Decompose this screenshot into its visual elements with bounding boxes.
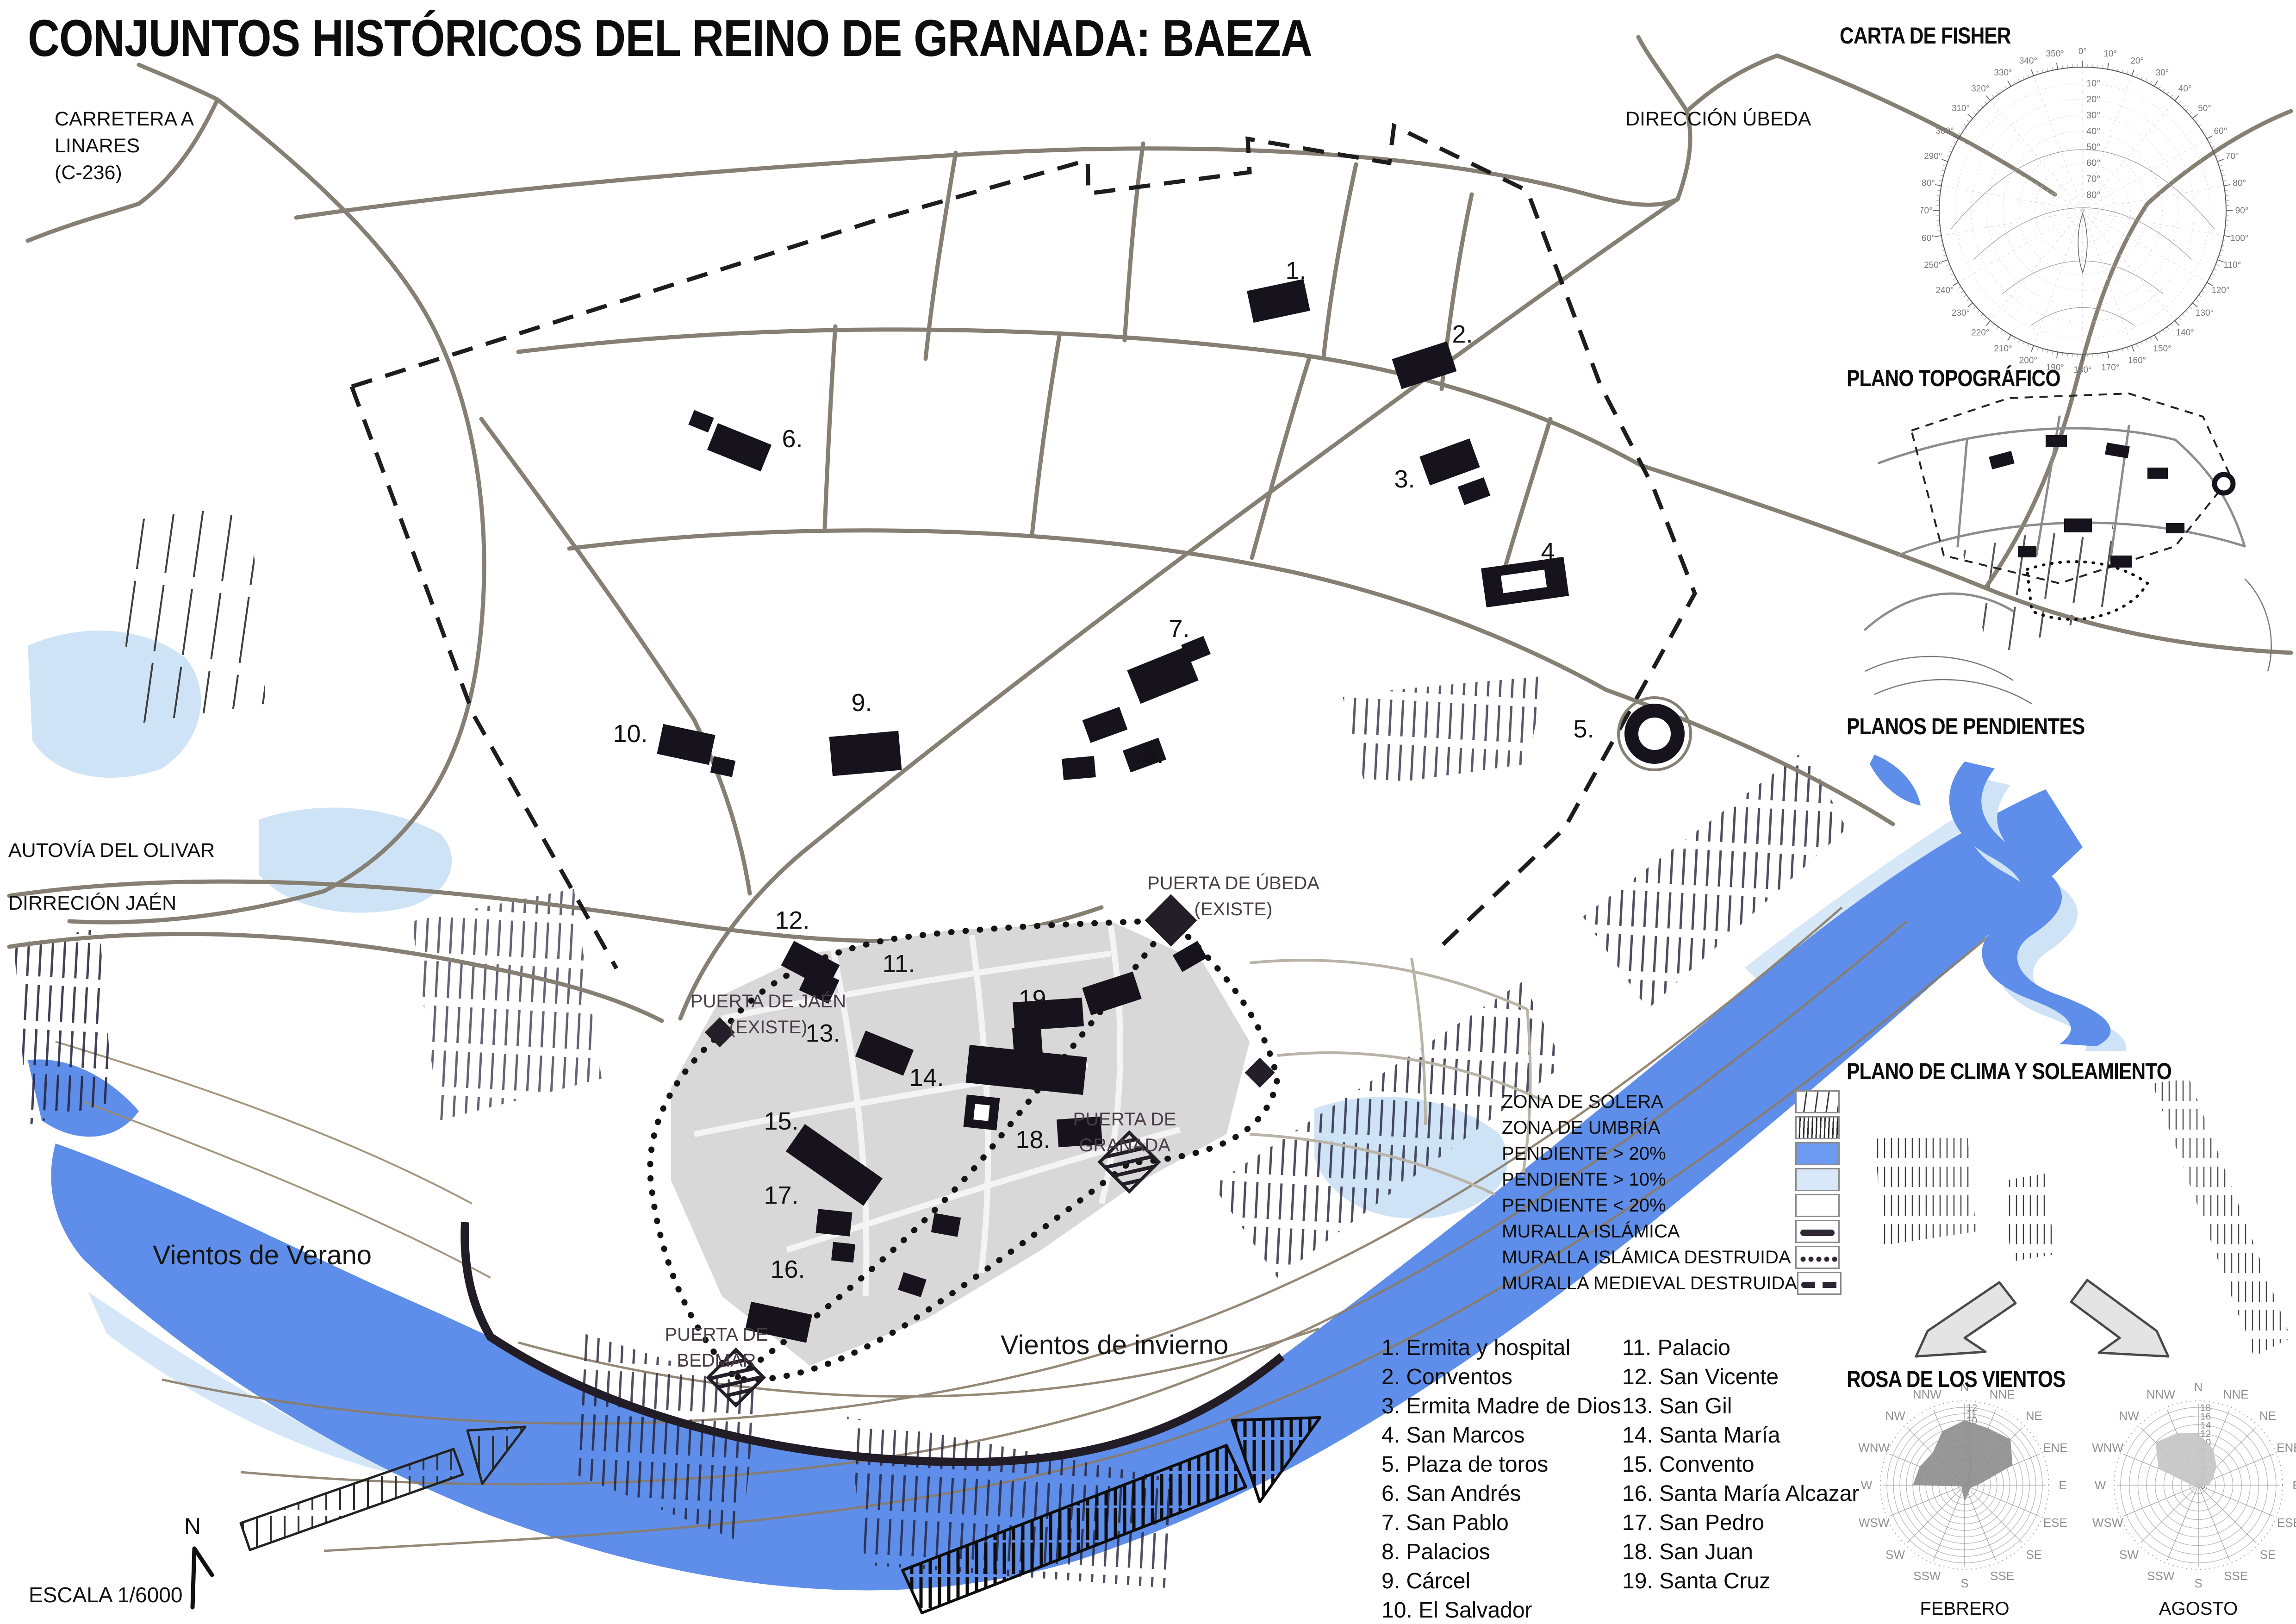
map-marker-15: 15. xyxy=(764,1107,798,1136)
topografico-panel-title: PLANO TOPOGRÁFICO xyxy=(1847,365,2060,392)
legend-label: MURALLA MEDIEVAL DESTRUIDA xyxy=(1502,1273,1797,1294)
azimuth-label: 150° xyxy=(2153,344,2171,354)
baeza-historic-map-sheet: 0°10°20°30°40°50°60°70°80°90°100°110°120… xyxy=(0,0,2296,1624)
azimuth-label: 70° xyxy=(2226,151,2239,161)
puerta-de-bedmar-line: PUERTA DE xyxy=(665,1322,768,1348)
legend-row: PENDIENTE > 20% xyxy=(1502,1141,1840,1167)
azimuth-label: 280° xyxy=(1921,178,1935,188)
azimuth-label: 320° xyxy=(1971,84,1989,94)
azimuth-label: 290° xyxy=(1924,151,1942,161)
azimuth-label: 0° xyxy=(2078,47,2087,56)
compass-label-NW: NW xyxy=(2119,1409,2139,1423)
altitude-label: 20° xyxy=(2086,94,2100,105)
compass-label-E: E xyxy=(2059,1478,2066,1492)
legend-swatch-dashed-line xyxy=(1797,1272,1842,1295)
altitude-label: 80° xyxy=(2086,190,2100,200)
puerta-de-bedmar-line: BEDMAR xyxy=(665,1348,768,1374)
map-marker-19: 19. xyxy=(1018,985,1053,1013)
azimuth-label: 80° xyxy=(2233,178,2246,188)
map-marker-5: 5. xyxy=(1573,715,1594,743)
index-entry: 7. San Pablo xyxy=(1381,1508,1621,1537)
compass-label-ENE: ENE xyxy=(2043,1441,2067,1455)
azimuth-label: 310° xyxy=(1952,104,1970,113)
azimuth-label: 160° xyxy=(2128,356,2146,365)
compass-label-SSE: SSE xyxy=(1990,1569,2014,1583)
map-marker-4: 4. xyxy=(1541,537,1562,566)
map-marker-14: 14. xyxy=(909,1063,944,1092)
azimuth-label: 250° xyxy=(1924,261,1942,270)
fisher-panel-title: CARTA DE FISHER xyxy=(1840,22,2011,49)
legend-label: PENDIENTE > 20% xyxy=(1502,1143,1795,1164)
compass-label-ESE: ESE xyxy=(2277,1516,2296,1530)
azimuth-label: 180° xyxy=(2073,365,2091,375)
index-entry: 9. Cárcel xyxy=(1381,1567,1621,1596)
compass-label-SE: SE xyxy=(2026,1548,2042,1562)
puerta-de-ubeda-label: PUERTA DE ÚBEDA(EXISTE) xyxy=(1147,870,1319,922)
radial-tick: 18 xyxy=(2200,1403,2211,1413)
index-entry: 19. Santa Cruz xyxy=(1622,1567,1859,1596)
topographic-mini-map xyxy=(1847,389,2291,713)
legend-row: ZONA DE SOLERA xyxy=(1502,1089,1840,1115)
puerta-de-granada-line: GRANADA xyxy=(1073,1132,1176,1158)
legend-swatch-solid-line xyxy=(1795,1220,1840,1243)
radial-tick: 12 xyxy=(1966,1403,1977,1413)
wind-roses-chart: NNNENEENEEESESESSESSSWSWWSWWWNWNWNNW0123… xyxy=(1833,1380,2296,1624)
legend-row: PENDIENTE > 10% xyxy=(1502,1167,1840,1193)
winter-winds-label: Vientos de invierno xyxy=(1001,1330,1228,1361)
map-marker-16: 16. xyxy=(770,1255,805,1284)
index-entry: 18. San Juan xyxy=(1622,1537,1859,1567)
azimuth-label: 210° xyxy=(1994,344,2012,354)
compass-label-W: W xyxy=(2095,1478,2106,1492)
altitude-label: 70° xyxy=(2086,174,2100,184)
puerta-de-ubeda-line: PUERTA DE ÚBEDA xyxy=(1147,870,1319,896)
scale-label: ESCALA 1/6000 xyxy=(29,1582,182,1607)
wind-rose-month-label: AGOSTO xyxy=(2159,1599,2238,1619)
puerta-de-ubeda-line: (EXISTE) xyxy=(1147,896,1319,922)
azimuth-label: 220° xyxy=(1971,328,1989,338)
index-entry: 10. El Salvador xyxy=(1381,1596,1621,1624)
legend-swatch-dotted-line xyxy=(1795,1246,1840,1269)
legend-swatch-white xyxy=(1795,1194,1840,1217)
azimuth-label: 330° xyxy=(1994,68,2012,78)
rosa-panel-title: ROSA DE LOS VIENTOS xyxy=(1847,1366,2066,1393)
azimuth-label: 240° xyxy=(1935,286,1954,295)
map-marker-10: 10. xyxy=(613,719,647,748)
summer-winds-label: Vientos de Verano xyxy=(153,1240,372,1271)
muralla-medieval-destruida xyxy=(352,126,1695,968)
azimuth-label: 300° xyxy=(1935,126,1954,136)
road-label-autovia-olivar: AUTOVÍA DEL OLIVAR xyxy=(8,837,215,864)
compass-label-W: W xyxy=(1861,1478,1873,1492)
map-marker-1: 1. xyxy=(1285,256,1306,285)
azimuth-label: 340° xyxy=(2019,56,2037,66)
map-legend: ZONA DE SOLERAZONA DE UMBRÍAPENDIENTE > … xyxy=(1502,1089,1840,1296)
index-entry: 1. Ermita y hospital xyxy=(1381,1333,1621,1362)
index-entry: 2. Conventos xyxy=(1381,1362,1621,1392)
compass-label-SW: SW xyxy=(2119,1548,2139,1562)
azimuth-label: 100° xyxy=(2230,234,2248,244)
index-entry: 16. Santa María Alcazar xyxy=(1622,1479,1859,1508)
wind-rose-polygon xyxy=(1913,1420,2013,1501)
legend-label: MURALLA ISLÁMICA xyxy=(1502,1221,1795,1242)
map-marker-18: 18. xyxy=(1015,1125,1050,1154)
puerta-de-granada-label: PUERTA DEGRANADA xyxy=(1073,1106,1176,1158)
compass-label-NE: NE xyxy=(2026,1409,2042,1423)
compass-label-WNW: WNW xyxy=(1858,1441,1890,1455)
legend-swatch-blue xyxy=(1795,1142,1840,1165)
azimuth-label: 230° xyxy=(1952,308,1970,318)
north-label: N xyxy=(184,1513,201,1540)
legend-row: MURALLA MEDIEVAL DESTRUIDA xyxy=(1502,1270,1840,1296)
legend-swatch-hatch-dense xyxy=(1795,1116,1840,1139)
index-entry: 11. Palacio xyxy=(1622,1333,1859,1362)
compass-label-E: E xyxy=(2292,1478,2296,1492)
pendientes-panel-title: PLANOS DE PENDIENTES xyxy=(1847,713,2084,740)
azimuth-label: 20° xyxy=(2130,56,2144,66)
altitude-label: 60° xyxy=(2086,158,2100,169)
road-label-dirrecion-jaen: DIRRECIÓN JAÉN xyxy=(8,890,176,917)
compass-label-ENE: ENE xyxy=(2277,1441,2296,1455)
compass-label-SSW: SSW xyxy=(2147,1569,2175,1583)
map-marker-12: 12. xyxy=(775,906,809,935)
map-marker-3: 3. xyxy=(1394,465,1415,493)
azimuth-label: 90° xyxy=(2235,206,2249,216)
index-entry: 13. San Gil xyxy=(1622,1392,1859,1421)
compass-label-WNW: WNW xyxy=(2092,1441,2123,1455)
azimuth-label: 140° xyxy=(2176,328,2194,338)
map-marker-9: 9. xyxy=(851,688,872,717)
compass-label-S: S xyxy=(1960,1576,1968,1590)
compass-label-ESE: ESE xyxy=(2043,1516,2067,1530)
legend-row: PENDIENTE < 20% xyxy=(1502,1193,1840,1218)
compass-label-SSW: SSW xyxy=(1913,1569,1941,1583)
azimuth-label: 30° xyxy=(2156,68,2169,78)
map-marker-7: 7. xyxy=(1169,614,1189,643)
index-entry: 6. San Andrés xyxy=(1381,1479,1621,1508)
compass-label-SSE: SSE xyxy=(2224,1569,2248,1583)
road-label-carretera-linares: CARRETERA A LINARES (C-236) xyxy=(55,106,194,186)
legend-label: ZONA DE SOLERA xyxy=(1502,1092,1795,1112)
wind-rose-month-label: FEBRERO xyxy=(1920,1599,2009,1619)
azimuth-label: 170° xyxy=(2101,363,2119,373)
monument-index-col2: 11. Palacio12. San Vicente13. San Gil14.… xyxy=(1622,1333,1859,1596)
legend-row: MURALLA ISLÁMICA xyxy=(1502,1218,1840,1244)
page-title: CONJUNTOS HISTÓRICOS DEL REINO DE GRANAD… xyxy=(28,8,1312,68)
plaza-de-toros-ring xyxy=(1618,698,1691,770)
azimuth-label: 270° xyxy=(1921,206,1933,216)
legend-label: PENDIENTE > 10% xyxy=(1502,1169,1795,1190)
compass-label-SW: SW xyxy=(1885,1548,1905,1562)
climate-sun-plan-mini xyxy=(1847,1079,2291,1366)
azimuth-label: 110° xyxy=(2223,261,2241,270)
legend-swatch-lightblue xyxy=(1795,1168,1840,1191)
index-entry: 5. Plaza de toros xyxy=(1381,1450,1621,1479)
map-marker-6: 6. xyxy=(782,425,803,453)
legend-row: ZONA DE UMBRÍA xyxy=(1502,1115,1840,1141)
slope-plan-mini xyxy=(1847,736,2291,1051)
puerta-de-granada-line: PUERTA DE xyxy=(1073,1106,1176,1132)
compass-label-NW: NW xyxy=(1885,1409,1905,1423)
legend-swatch-hatch-sparse xyxy=(1795,1090,1840,1113)
legend-label: ZONA DE UMBRÍA xyxy=(1502,1118,1795,1138)
map-marker-8: 8. xyxy=(1143,740,1164,769)
index-entry: 14. Santa María xyxy=(1622,1421,1859,1450)
puerta-de-jaen-line: PUERTA DE JAÉN xyxy=(691,988,846,1014)
wind-rose-agosto: NNNENEENEEESESESSESSSWSWWSWWWNWNWNNW0246… xyxy=(2092,1380,2296,1619)
map-marker-17: 17. xyxy=(764,1181,798,1210)
legend-label: PENDIENTE < 20% xyxy=(1502,1195,1795,1216)
compass-label-N: N xyxy=(2194,1380,2203,1394)
legend-label: MURALLA ISLÁMICA DESTRUIDA xyxy=(1502,1247,1795,1268)
sun-path-chart: 0°10°20°30°40°50°60°70°80°90°100°110°120… xyxy=(1921,44,2248,375)
azimuth-label: 120° xyxy=(2211,286,2229,295)
azimuth-label: 200° xyxy=(2019,356,2037,365)
index-entry: 4. San Marcos xyxy=(1381,1421,1621,1450)
compass-label-SE: SE xyxy=(2260,1548,2276,1562)
index-entry: 3. Ermita Madre de Dios xyxy=(1381,1392,1621,1421)
map-marker-11: 11. xyxy=(882,949,915,978)
compass-label-S: S xyxy=(2194,1576,2202,1590)
altitude-label: 40° xyxy=(2086,126,2100,137)
wind-rose-febrero: NNNENEENEEESESESSESSSWSWWSWWWNWNWNNW0123… xyxy=(1858,1380,2067,1619)
map-marker-2: 2. xyxy=(1452,320,1473,349)
altitude-label: 30° xyxy=(2086,110,2100,120)
azimuth-label: 260° xyxy=(1921,234,1935,244)
altitude-label: 10° xyxy=(2086,78,2100,88)
road-label-direccion-ubeda: DIRECCIÓN ÚBEDA xyxy=(1625,106,1811,132)
map-marker-13: 13. xyxy=(805,1019,840,1048)
azimuth-label: 60° xyxy=(2214,126,2228,136)
compass-label-WSW: WSW xyxy=(1859,1516,1890,1530)
north-arrow xyxy=(193,1549,212,1607)
fisher-sun-chart: 0°10°20°30°40°50°60°70°80°90°100°110°120… xyxy=(1921,44,2272,377)
compass-label-NNE: NNE xyxy=(2223,1387,2249,1401)
puerta-de-bedmar-label: PUERTA DEBEDMAR xyxy=(665,1322,768,1374)
azimuth-label: 350° xyxy=(2046,49,2064,59)
compass-label-NE: NE xyxy=(2259,1409,2276,1423)
compass-label-WSW: WSW xyxy=(2092,1516,2123,1530)
compass-label-NNW: NNW xyxy=(2147,1387,2176,1401)
azimuth-label: 130° xyxy=(2196,308,2214,318)
azimuth-label: 10° xyxy=(2103,49,2117,59)
index-entry: 17. San Pedro xyxy=(1622,1508,1859,1537)
monument-index-col1: 1. Ermita y hospital2. Conventos3. Ermit… xyxy=(1381,1333,1621,1624)
azimuth-label: 40° xyxy=(2178,84,2192,94)
north-label: N xyxy=(2079,44,2087,45)
index-entry: 15. Convento xyxy=(1622,1450,1859,1479)
legend-row: MURALLA ISLÁMICA DESTRUIDA xyxy=(1502,1244,1840,1270)
clima-panel-title: PLANO DE CLIMA Y SOLEAMIENTO xyxy=(1847,1058,2172,1085)
index-entry: 8. Palacios xyxy=(1381,1537,1621,1567)
index-entry: 12. San Vicente xyxy=(1622,1362,1859,1392)
azimuth-label: 50° xyxy=(2198,104,2211,113)
